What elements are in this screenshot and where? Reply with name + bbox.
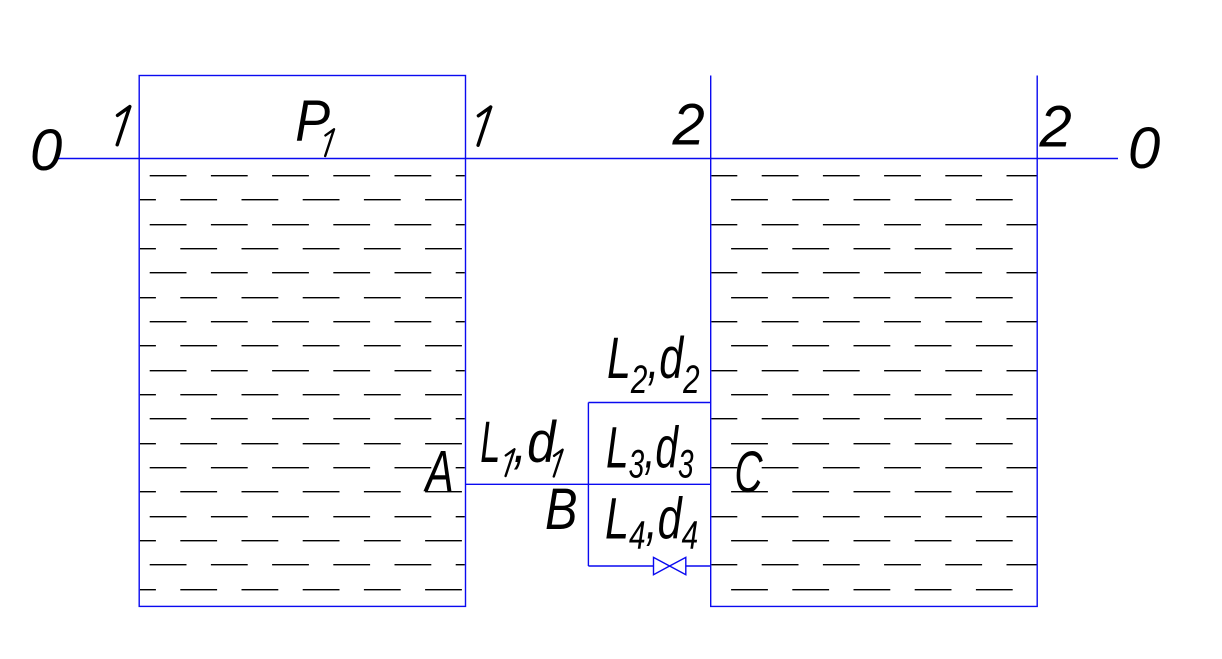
svg-text:A: A	[423, 439, 454, 504]
svg-text:L2,d2: L2,d2	[607, 326, 700, 402]
svg-text:L: L	[480, 410, 500, 475]
svg-text:2: 2	[672, 93, 705, 158]
svg-text:P: P	[295, 88, 330, 153]
svg-text:B: B	[545, 478, 577, 542]
svg-text:L3,d3: L3,d3	[606, 415, 694, 486]
svg-text:0: 0	[30, 118, 62, 183]
svg-text:,d: ,d	[513, 410, 557, 475]
svg-text:L4,d4: L4,d4	[605, 486, 698, 557]
svg-text:2: 2	[1039, 95, 1072, 160]
svg-text:C: C	[735, 440, 763, 505]
svg-text:0: 0	[1128, 116, 1160, 181]
